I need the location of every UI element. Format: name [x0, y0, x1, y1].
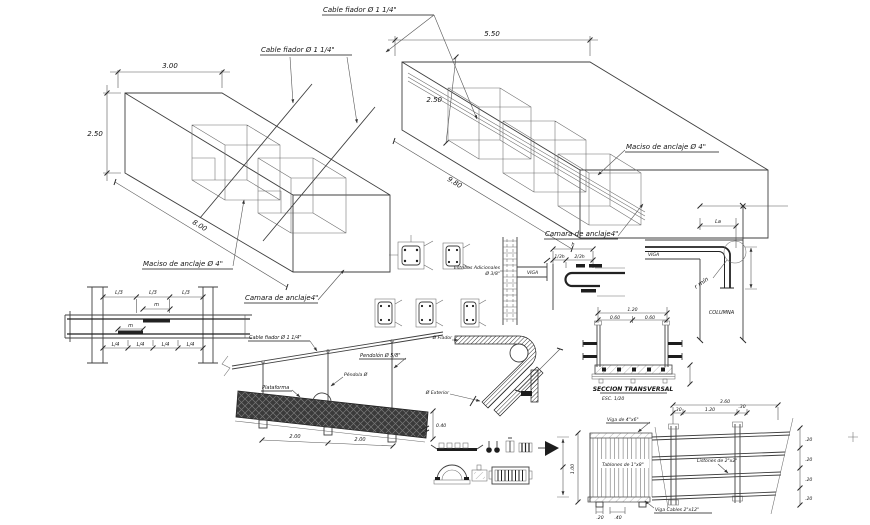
- bar-mark-3: [581, 289, 596, 293]
- column-lines: [503, 237, 517, 325]
- handrail-right-2: [668, 355, 682, 358]
- pendola-label: Péndola Ø: [344, 371, 368, 378]
- beam-reinforcement-elevation: L/3 L/3 L/3 m m L/4 L/4 L/4 L/4: [65, 287, 252, 363]
- dim-half-2: 0.60: [645, 315, 655, 321]
- planks-label: Tablones de 1"x8": [602, 462, 644, 468]
- dim-total: 1.20: [627, 307, 637, 313]
- beam-lines: [65, 311, 252, 342]
- platform-label: Plataforma: [262, 385, 289, 391]
- lap-bottom-label: m: [128, 323, 133, 329]
- bar-mark-2: [589, 264, 602, 268]
- battens-label: Listones de 2"x2": [697, 458, 737, 464]
- dim-half-1: 0.60: [610, 315, 620, 321]
- camara-label: Camara de anclaje4": [545, 230, 618, 238]
- anchorage-dim: La: [715, 219, 721, 225]
- section-scale: ESC. 1/20: [602, 396, 624, 402]
- cad-sheet: Cable fiador Ø 1 1/4" 3.00 2.50 8.00 Mac…: [0, 0, 870, 525]
- lap-top-label: m: [154, 302, 159, 308]
- top-beam: [590, 433, 652, 438]
- section-detail-3: [375, 299, 402, 327]
- hooked-rebar: [566, 273, 626, 286]
- plate-detail: [519, 443, 532, 452]
- dim-l3-2: L/3: [149, 290, 157, 296]
- cable-leader-1: [290, 57, 293, 103]
- stub-tick: [544, 258, 550, 263]
- span-dim-2: 2.00: [354, 437, 365, 443]
- dim-height: 2.50: [87, 130, 103, 138]
- maciso-label: Maciso de anclaje Ø 4": [143, 260, 223, 268]
- handrail-plates: [583, 340, 682, 360]
- cable-label: Cable fiador Ø 1 1/4": [323, 6, 397, 14]
- dim-length: 9.80: [446, 175, 464, 190]
- dim-width: 5.50: [484, 30, 500, 38]
- pendolon-leader: [394, 358, 406, 368]
- camara-label: Camara de anclaje4": [245, 294, 318, 302]
- anchor-chamber-2: [503, 121, 586, 192]
- dim-bottom-b: .40: [614, 515, 621, 521]
- clamp-assembly-detail: [431, 443, 483, 451]
- deck-plan-view: 1.00 .20 .40 Viga de 4"x6" Tablones de 1…: [570, 399, 858, 521]
- radius-label: r mín: [693, 276, 710, 291]
- anchor-chamber-cube-2: [258, 158, 346, 233]
- dim-row2-b: 1.20: [705, 407, 715, 413]
- hardware-details-cluster: [431, 437, 569, 497]
- anchor-chamber-cube-1: [192, 125, 280, 200]
- column-label: COLUMNA: [709, 310, 735, 316]
- platform-leader: [292, 390, 300, 397]
- cable-leader-2: [347, 57, 357, 123]
- column-splice-detail: VIGA Estribos Adicionales Ø 3/8": [454, 237, 550, 325]
- dim-l4-2: L/4: [137, 342, 145, 348]
- grill-detail: [489, 467, 532, 484]
- stirrups-label-1: Estribos Adicionales: [454, 265, 501, 271]
- foot-2: [639, 502, 646, 507]
- iso-anchor-block-left: Cable fiador Ø 1 1/4" 3.00 2.50 8.00 Mac…: [87, 46, 390, 303]
- dim-h: h: [571, 242, 574, 248]
- tag-box: [521, 391, 532, 396]
- dim-width-lines: [110, 70, 230, 88]
- cable-beam-label: Viga Cables 2"x12": [655, 507, 699, 513]
- anchor-chamber-1: [448, 88, 531, 159]
- rails: [652, 432, 790, 500]
- section-detail-5: [461, 299, 486, 327]
- beam-leader: [638, 422, 650, 432]
- dim-l4-3: L/4: [162, 342, 170, 348]
- dim-length-line: [115, 182, 287, 287]
- camara-leader: [318, 270, 344, 300]
- dim-l3-1: L/3: [115, 290, 123, 296]
- pendolon-label: Pendolón Ø 5/8": [360, 352, 401, 359]
- cable-band-main: [455, 336, 536, 408]
- dim-right-4: .20: [805, 496, 812, 502]
- anchor-pot-detail: [472, 465, 487, 481]
- top-dim-lines: [103, 297, 203, 313]
- cad-drawing-canvas: Cable fiador Ø 1 1/4" 3.00 2.50 8.00 Mac…: [0, 0, 870, 525]
- foot-1: [596, 502, 603, 507]
- arch-culvert-detail: [434, 465, 470, 484]
- pendola-leader: [331, 377, 343, 386]
- handrail-left-2: [583, 355, 597, 358]
- dim-l3-3: L/3: [182, 290, 190, 296]
- reference-cross: [848, 432, 858, 442]
- exterior-tick: [470, 396, 476, 406]
- dim-l4-1: L/4: [112, 342, 120, 348]
- camara-leader: [618, 204, 643, 236]
- dim-right-1: .20: [805, 437, 812, 443]
- span-ticks: [260, 438, 396, 449]
- corner-joint-detail: La r mín VIGA COLUMNA: [645, 203, 788, 343]
- block-outline: [125, 93, 390, 272]
- dim-width: 3.00: [162, 62, 178, 70]
- cable-label: Cable fiador Ø 1 1/4": [249, 334, 302, 341]
- handrail-left-1: [583, 342, 597, 345]
- rebar-dashed: [507, 239, 513, 323]
- hook-anchorage-detail: h 1/3h 2/3h: [551, 242, 626, 310]
- dim-two-third: 2/3h: [574, 254, 584, 260]
- dim-row2-c: .30: [738, 404, 745, 410]
- dim-bottom-a: .20: [596, 515, 603, 521]
- cable-leader: [310, 341, 317, 351]
- dim-third: 1/3h: [554, 254, 564, 260]
- dim-height: 2.50: [426, 96, 442, 104]
- cable-lines: [200, 84, 375, 241]
- maciso-leader: [233, 200, 244, 266]
- top-dim-lines: [673, 405, 778, 424]
- saddle-pin: [510, 344, 528, 362]
- bottom-beam: [588, 497, 650, 502]
- dim-row2-a: .30: [674, 407, 681, 413]
- depth-dim: 0.40: [436, 423, 446, 429]
- dim-l4-4: L/4: [187, 342, 195, 348]
- handrail-right-1: [668, 342, 682, 345]
- section-detail-1: [389, 235, 433, 270]
- cable-saddle-detail: Ø Fiador Ø Exterior: [421, 334, 563, 434]
- walkway-elevation: 2.00 2.00 0.40 Cable fiador Ø 1 1/4" Pen…: [222, 332, 446, 449]
- beam-label: Viga de 4"x6": [607, 417, 639, 423]
- fiador-label: Ø Fiador: [432, 334, 454, 341]
- beam-label: VIGA: [648, 252, 659, 258]
- dim-left: 1.00: [570, 464, 576, 474]
- beam-label: VIGA: [527, 270, 538, 276]
- cross-section: 1.20 0.60 0.60 SECCION TRANSVERSAL ESC. …: [583, 307, 693, 402]
- dim-top: 3.60: [720, 399, 730, 405]
- bottom-dims: [596, 507, 625, 514]
- wedge-detail: [538, 441, 559, 456]
- posts: [597, 325, 668, 367]
- dim-height-lines: [103, 85, 121, 181]
- cable-label: Cable fiador Ø 1 1/4": [261, 46, 335, 54]
- break-symbol: [222, 356, 230, 376]
- block-outline: [402, 62, 768, 238]
- bar-mark-1: [576, 264, 585, 268]
- dim-right-3: .20: [805, 477, 812, 483]
- stirrup-rungs: [503, 241, 517, 319]
- column-lines: [87, 287, 218, 363]
- span-dim-1: 2.00: [289, 434, 300, 440]
- section-detail-4: [416, 299, 443, 327]
- exterior-label: Ø Exterior: [425, 389, 450, 396]
- battens-leader: [718, 464, 728, 473]
- dim-right-2: .20: [805, 457, 812, 463]
- dim-width-lines: [388, 36, 598, 56]
- cable-bundle: [408, 73, 645, 220]
- turnbuckle-detail: [506, 438, 514, 452]
- cable-leader-1: [386, 15, 434, 52]
- rebar-section-details: [375, 235, 486, 327]
- maciso-label: Maciso de anclaje Ø 4": [626, 143, 706, 151]
- stirrups-label-2: Ø 3/8": [484, 270, 500, 277]
- u-bolt-detail: [486, 441, 500, 453]
- section-title: SECCION TRANSVERSAL: [593, 386, 674, 393]
- iso-anchor-block-right: Cable fiador Ø 1 1/4" 5.50 2.50 9.80 Mac…: [322, 6, 768, 252]
- rebar-laps: [118, 321, 170, 332]
